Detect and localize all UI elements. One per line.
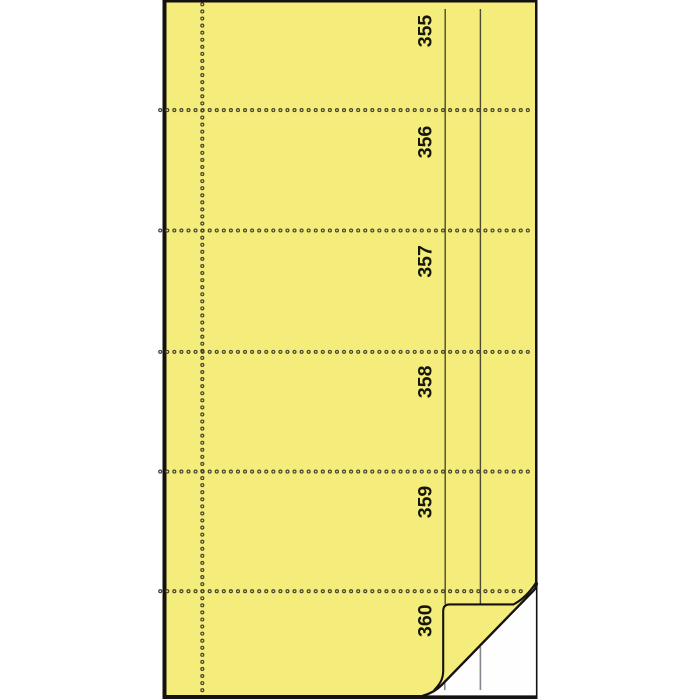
svg-text:359: 359	[415, 486, 437, 519]
svg-text:355: 355	[415, 15, 437, 48]
svg-text:360: 360	[415, 604, 437, 637]
svg-text:357: 357	[415, 245, 437, 278]
svg-text:356: 356	[415, 126, 437, 159]
svg-text:358: 358	[415, 365, 437, 398]
